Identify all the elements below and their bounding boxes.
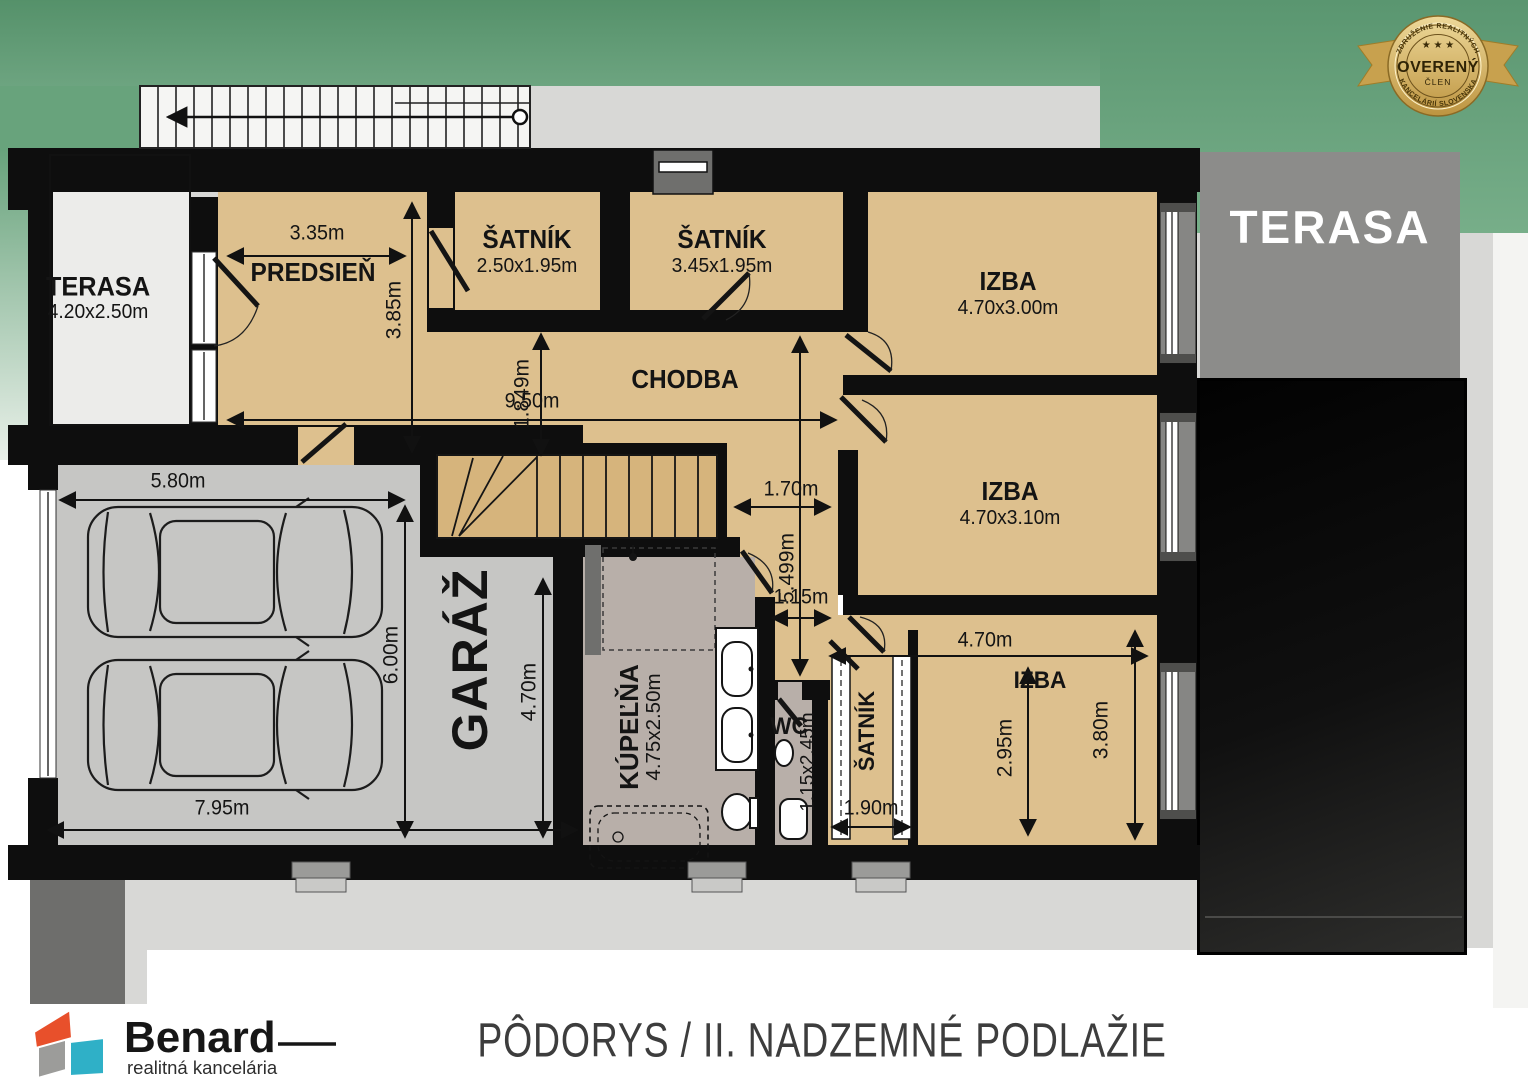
dim-corridor-width: 1.15m xyxy=(774,587,829,608)
dim-garage-width-bottom: 7.95m xyxy=(195,798,250,819)
dim-chodba-length: 9.50m xyxy=(505,391,560,412)
floorplan-canvas: TERASA 4.20x2.50m PREDSIEŇ ŠATNÍK 2.50x1… xyxy=(0,0,1528,1080)
room-dims-satnik1: 2.50x1.95m xyxy=(477,256,578,277)
logo-name: Benard xyxy=(124,1013,276,1062)
page-title: PÔDORYS / II. NADZEMNÉ PODLAŽIE xyxy=(477,1014,1166,1069)
bathtub xyxy=(590,806,708,868)
dim-predsien-width: 3.35m xyxy=(290,223,345,244)
room-label-satnik1: ŠATNÍK xyxy=(482,226,571,252)
logo-tagline: realitná kancelária xyxy=(127,1057,278,1078)
dim-izba3-depth: 3.80m xyxy=(1091,701,1112,759)
room-dims-izba2: 4.70x3.10m xyxy=(960,508,1061,529)
dim-landing-width: 1.70m xyxy=(764,479,819,500)
room-label-terasa-left: TERASA xyxy=(46,274,150,301)
dim-garage-depth: 6.00m xyxy=(381,626,402,684)
window xyxy=(1160,663,1196,819)
chimney-vent xyxy=(653,150,713,194)
dim-predsien-depth: 3.85m xyxy=(384,281,405,339)
toilet-icon xyxy=(722,794,752,830)
room-label-izba1: IZBA xyxy=(979,268,1036,294)
room-label-chodba: CHODBA xyxy=(631,366,738,392)
entry-door-window xyxy=(192,252,216,422)
door-thresholds xyxy=(292,862,910,892)
window xyxy=(1160,203,1196,363)
verified-badge: ZDRUŽENIE REALITNÝCH KANCELÁRIÍ SLOVENSK… xyxy=(1352,2,1524,154)
plan-linework xyxy=(0,0,1528,1080)
window xyxy=(1160,413,1196,561)
room-dims-wc: 1.15x2.45m xyxy=(799,712,818,811)
room-label-kupelna: KÚPEĽŇA xyxy=(616,664,642,790)
dim-garage-width-top: 5.80m xyxy=(151,471,206,492)
car xyxy=(88,498,382,646)
dim-izba3-width: 4.70m xyxy=(958,630,1013,651)
room-label-izba2: IZBA xyxy=(981,478,1038,504)
room-label-predsien: PREDSIEŇ xyxy=(251,259,376,285)
agency-logo: Benard realitná kancelária xyxy=(26,1004,336,1080)
dim-satnik3-width: 1.90m xyxy=(844,798,899,819)
logo-cube-teal xyxy=(70,1038,104,1076)
badge-sub-text: ČLEN xyxy=(1425,77,1452,87)
room-label-satnik2: ŠATNÍK xyxy=(677,226,766,252)
badge-stars: ★ ★ ★ xyxy=(1422,40,1454,51)
room-dims-izba1: 4.70x3.00m xyxy=(958,298,1059,319)
room-label-garaz: GARÁŽ xyxy=(445,569,495,752)
car xyxy=(88,651,382,799)
wc-basin xyxy=(775,740,793,766)
room-dims-kupelna: 4.75x2.50m xyxy=(644,673,665,780)
badge-main-text: OVERENÝ xyxy=(1397,57,1479,76)
exterior-stairs xyxy=(140,86,530,148)
windows-right-wall xyxy=(1160,203,1196,819)
garage-door xyxy=(40,490,56,778)
dim-izba3-depth-inner: 2.95m xyxy=(995,719,1016,777)
bathroom-fixtures xyxy=(585,545,758,868)
room-label-satnik3: ŠATNÍK xyxy=(856,691,878,771)
sink-basin xyxy=(722,708,752,762)
room-dims-terasa-left: 4.20x2.50m xyxy=(48,302,149,323)
sink-basin xyxy=(722,642,752,696)
dim-garage-inner-depth: 4.70m xyxy=(519,663,540,721)
room-label-terasa-right: TERASA xyxy=(1229,204,1430,250)
interior-stairs xyxy=(437,455,717,538)
room-dims-satnik2: 3.45x1.95m xyxy=(672,256,773,277)
room-label-izba3: IZBA xyxy=(1014,669,1067,693)
shower-area xyxy=(603,548,715,650)
shower-partition xyxy=(585,545,601,655)
